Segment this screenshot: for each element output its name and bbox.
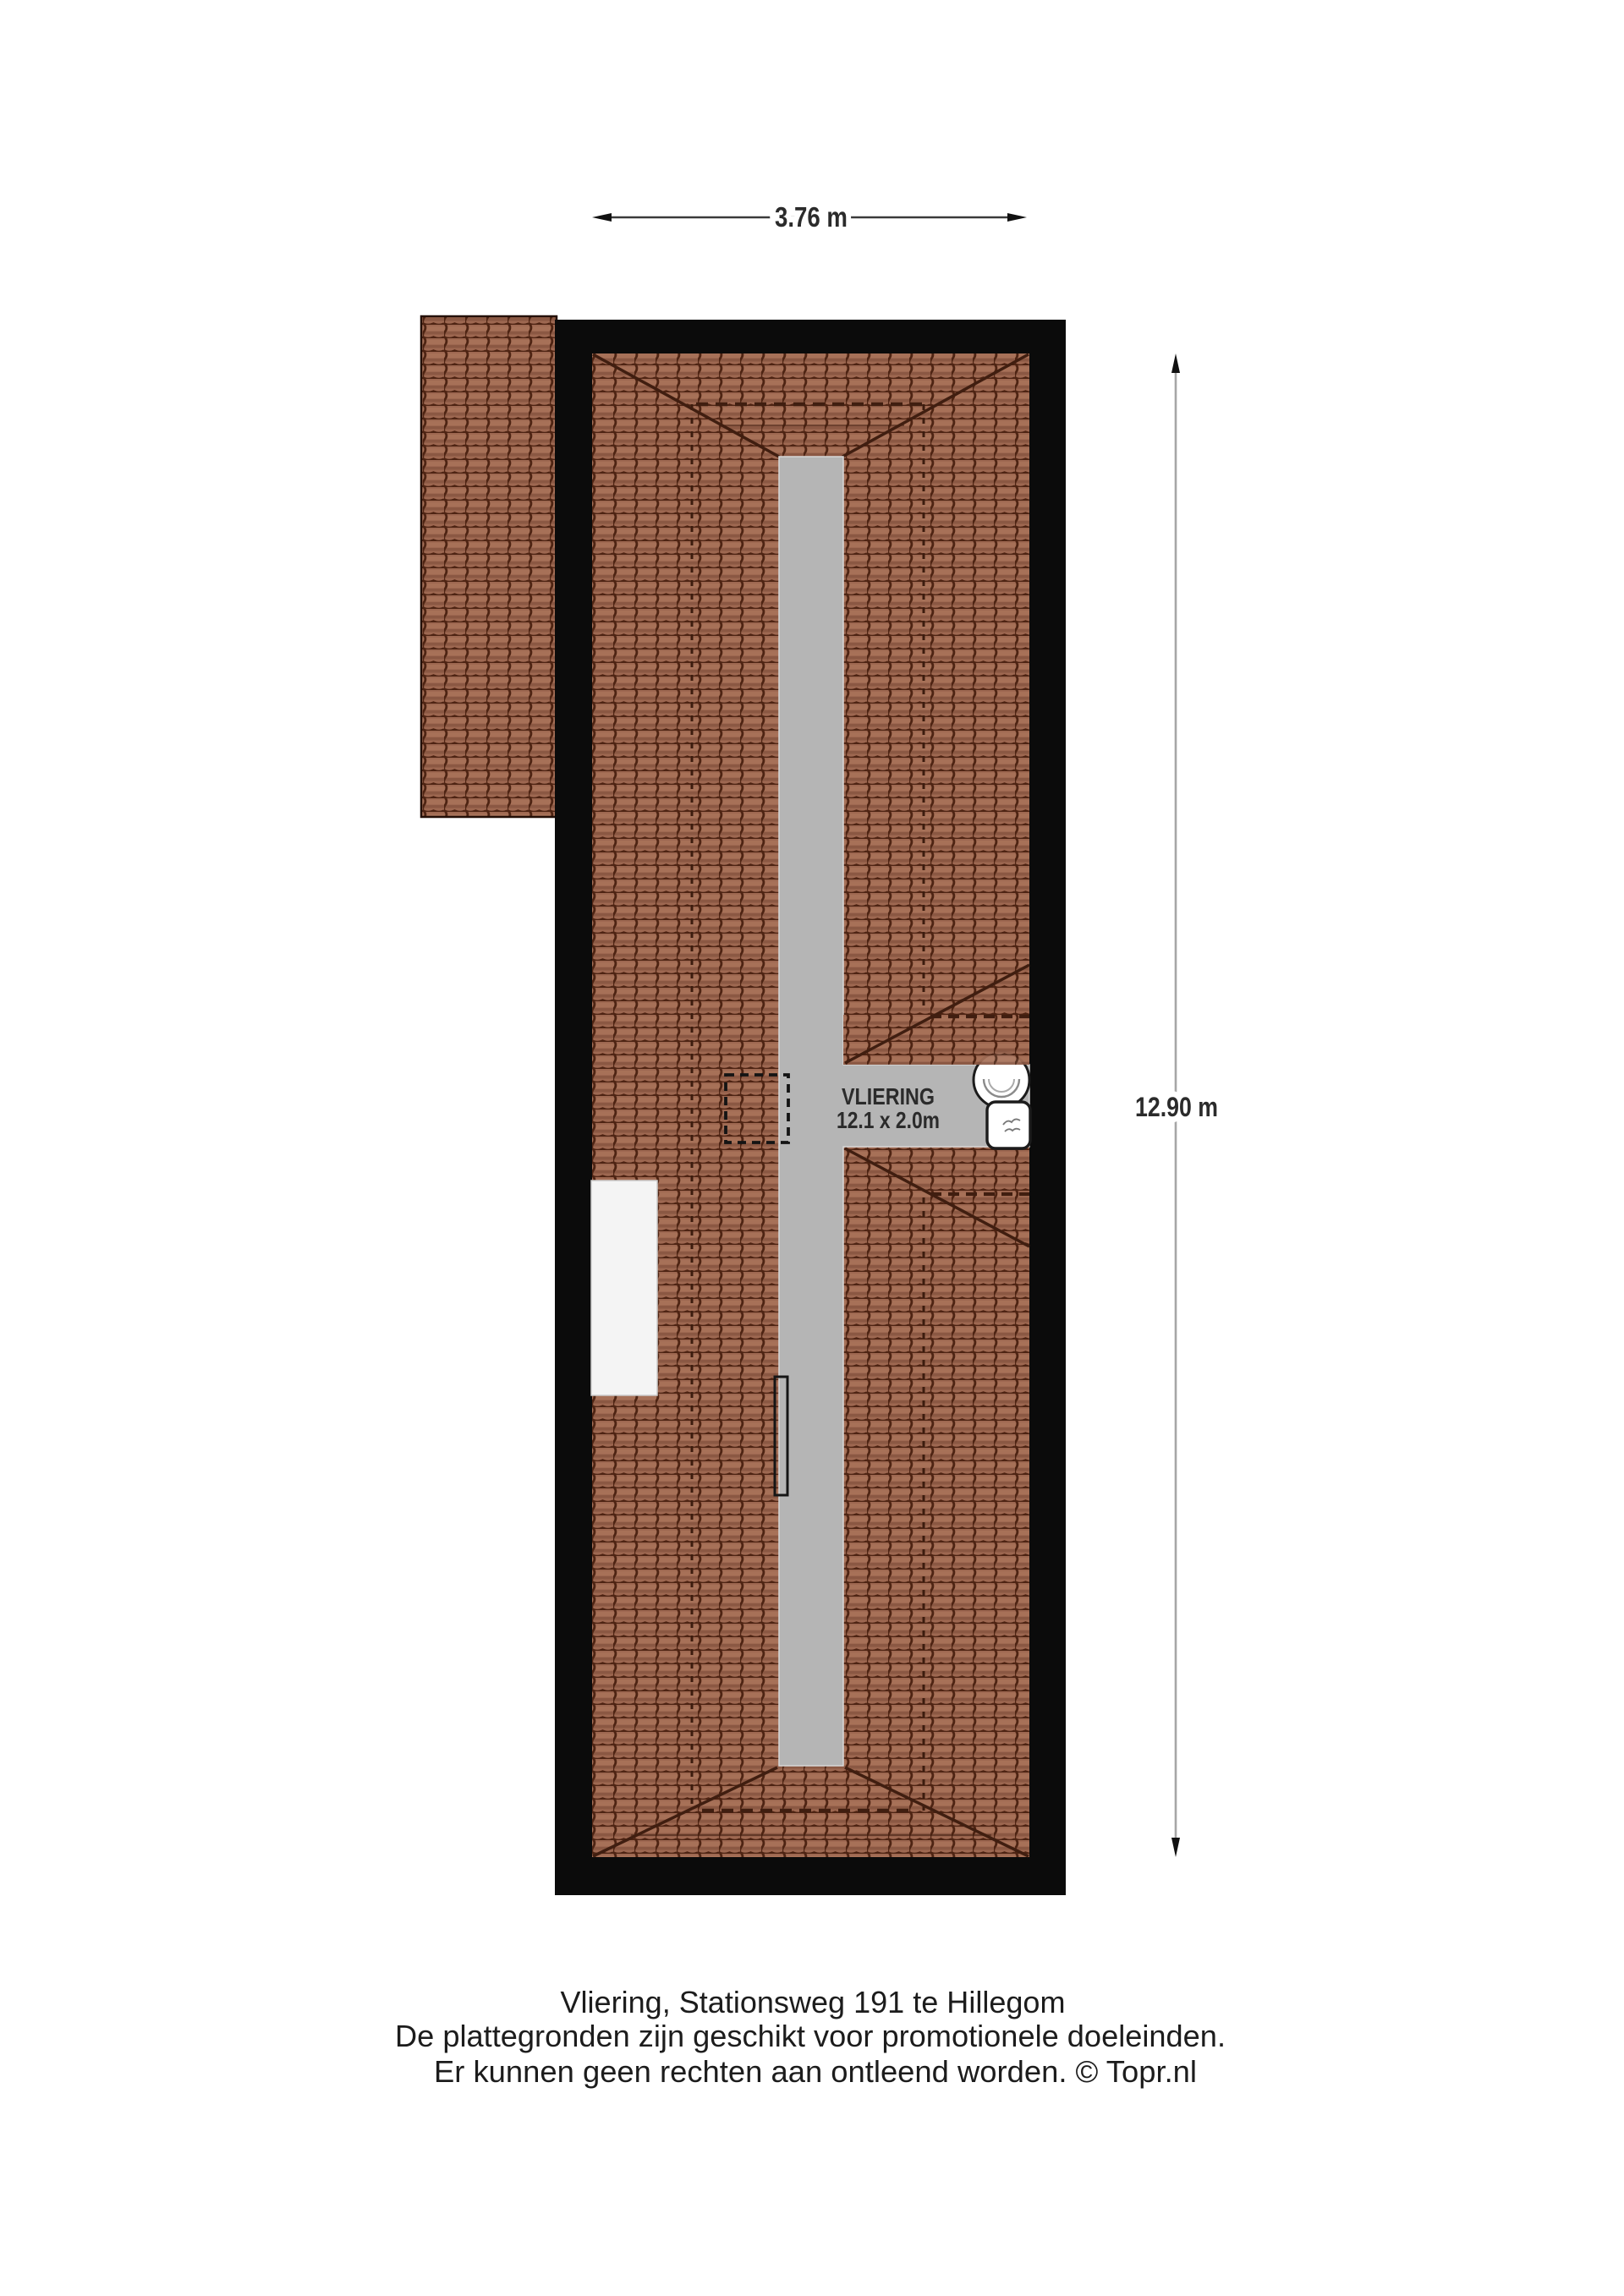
svg-text:Vliering, Stationsweg 191 te H: Vliering, Stationsweg 191 te Hillegom: [561, 1985, 1066, 2019]
svg-text:3.76 m: 3.76 m: [775, 201, 848, 233]
svg-text:Er kunnen geen rechten aan ont: Er kunnen geen rechten aan ontleend word…: [434, 2054, 1197, 2089]
svg-text:12.90 m: 12.90 m: [1135, 1092, 1218, 1122]
svg-text:VLIERING: VLIERING: [842, 1083, 935, 1110]
svg-text:De plattegronden zijn geschikt: De plattegronden zijn geschikt voor prom…: [395, 2019, 1226, 2053]
svg-text:12.1 x 2.0m: 12.1 x 2.0m: [837, 1107, 940, 1133]
